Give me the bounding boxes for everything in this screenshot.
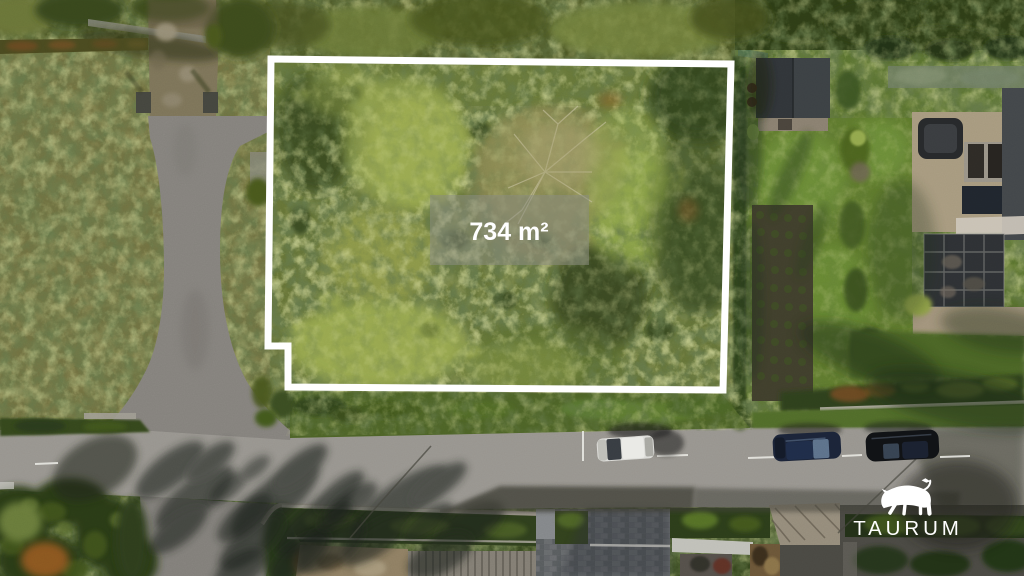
svg-text:734 m²: 734 m² bbox=[469, 218, 548, 246]
svg-text:TAURUM: TAURUM bbox=[853, 517, 963, 540]
